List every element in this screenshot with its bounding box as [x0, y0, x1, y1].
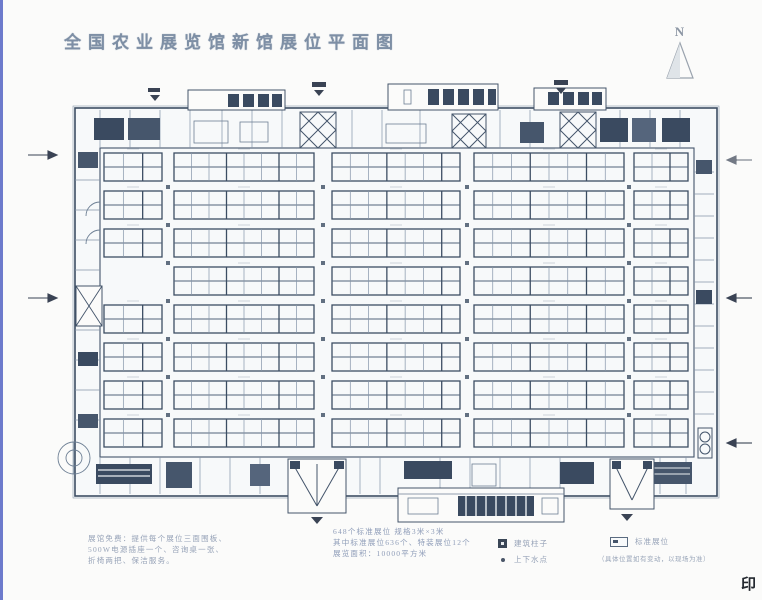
legend-disclaimer: （具体位置如有变动，以现场为准）	[598, 553, 710, 563]
note-line: 展馆免费：提供每个展位三面围板、	[88, 533, 258, 544]
legend-item-column: 建筑柱子 标准展位	[498, 538, 728, 549]
legend-label: 上下水点	[514, 554, 548, 565]
legend-label: 建筑柱子	[514, 538, 548, 549]
note-line: 展览面积：10000平方米	[333, 548, 503, 559]
note-line: 500W电源插座一个、咨询桌一张、	[88, 544, 258, 555]
notes-center: 648个标准展位 规格3米×3米 其中标准展位636个、特装展位12个 展览面积…	[333, 526, 503, 559]
legend-label: 标准展位	[635, 536, 669, 547]
bottom-stair-lobby-left	[288, 459, 346, 524]
bottom-stair-lobby-right	[610, 459, 654, 521]
legend: 建筑柱子 标准展位 上下水点 （具体位置如有变动，以现场为准）	[498, 538, 728, 570]
legend-item-booth: 标准展位	[610, 536, 669, 547]
bottom-entrance-hall	[398, 488, 564, 522]
scanned-floor-plan-page: 全国农业展览馆新馆展位平面图 N	[0, 0, 762, 600]
booth-icon	[610, 537, 628, 547]
water-point-icon	[501, 558, 505, 562]
note-line: 其中标准展位636个、特装展位12个	[333, 537, 503, 548]
stamp-mark: 印	[741, 573, 756, 594]
top-lobbies	[188, 84, 606, 110]
notes-left: 展馆免费：提供每个展位三面围板、 500W电源插座一个、咨询桌一张、 折椅两把、…	[88, 533, 258, 566]
column-icon	[498, 539, 507, 548]
note-line: 折椅两把、保洁服务。	[88, 555, 258, 566]
floor-plan	[0, 0, 762, 600]
note-line: 648个标准展位 规格3米×3米	[333, 526, 503, 537]
